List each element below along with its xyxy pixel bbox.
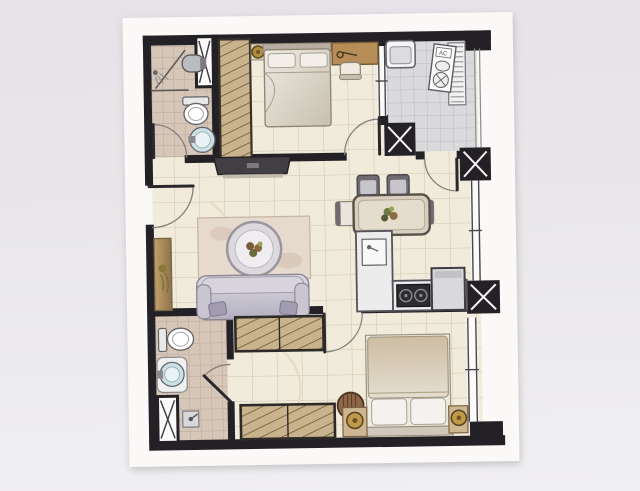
refrigerator: [431, 268, 465, 311]
mop-basin: [183, 411, 199, 427]
bed-2: [364, 334, 454, 436]
bed2-pillow-right: [411, 398, 446, 425]
ac-outdoor-unit: AC: [429, 44, 457, 92]
kitchen-sink: [362, 239, 386, 265]
wardrobe-master: [219, 39, 252, 159]
floor-plan-photo: AC: [0, 0, 640, 491]
dining-table: [353, 194, 430, 235]
toilet2: [158, 328, 193, 352]
wall-balcony-divider-a: [416, 151, 425, 159]
bed1-pillow-left: [268, 53, 295, 67]
sofa-cushion-left: [208, 301, 227, 316]
photo-perspective-group: AC: [122, 12, 519, 467]
sideboard: [154, 238, 172, 310]
wall-northeast-corner: [465, 30, 491, 50]
desk: [332, 42, 378, 65]
nightstand-right: [449, 406, 468, 433]
floor-plan-drawing: AC: [0, 0, 640, 491]
stove: [397, 284, 430, 307]
bed2-pillow-left: [372, 399, 407, 426]
wardrobe-bedroom2-north: [235, 316, 324, 351]
desk-chair: [339, 62, 361, 79]
tv-console-detail: [247, 163, 259, 168]
wall-bathroom2-east-upper: [226, 315, 234, 359]
nightstand-left: [343, 407, 367, 436]
rug-and-coffee-table: [198, 216, 311, 280]
sofa-back-roll: [202, 276, 304, 294]
sofa-arm-left: [197, 285, 212, 319]
bed-master: [263, 43, 332, 127]
wardrobe-bedroom2-south: [241, 404, 336, 439]
refrigerator-handle: [435, 271, 462, 278]
basin-vanity2: [157, 357, 188, 392]
tv-console: [214, 156, 291, 178]
bed2-headboard: [365, 426, 453, 436]
sink1-tap: [188, 136, 195, 143]
sofa: [197, 274, 310, 320]
coffee-table-tray: [235, 230, 274, 269]
bed2-duvet: [368, 336, 449, 398]
basin2-tap: [157, 370, 163, 378]
laundry-sink-unit: [386, 40, 415, 67]
sofa-cushion-right: [279, 301, 297, 316]
wall-basin-tap: [200, 58, 206, 69]
bed1-pillow-right: [300, 53, 327, 67]
ac-label-text: AC: [439, 51, 449, 58]
wall-bathroom2-east-lower: [228, 401, 236, 441]
toilet1: [183, 97, 209, 125]
wall-southeast-stub: [470, 421, 503, 438]
